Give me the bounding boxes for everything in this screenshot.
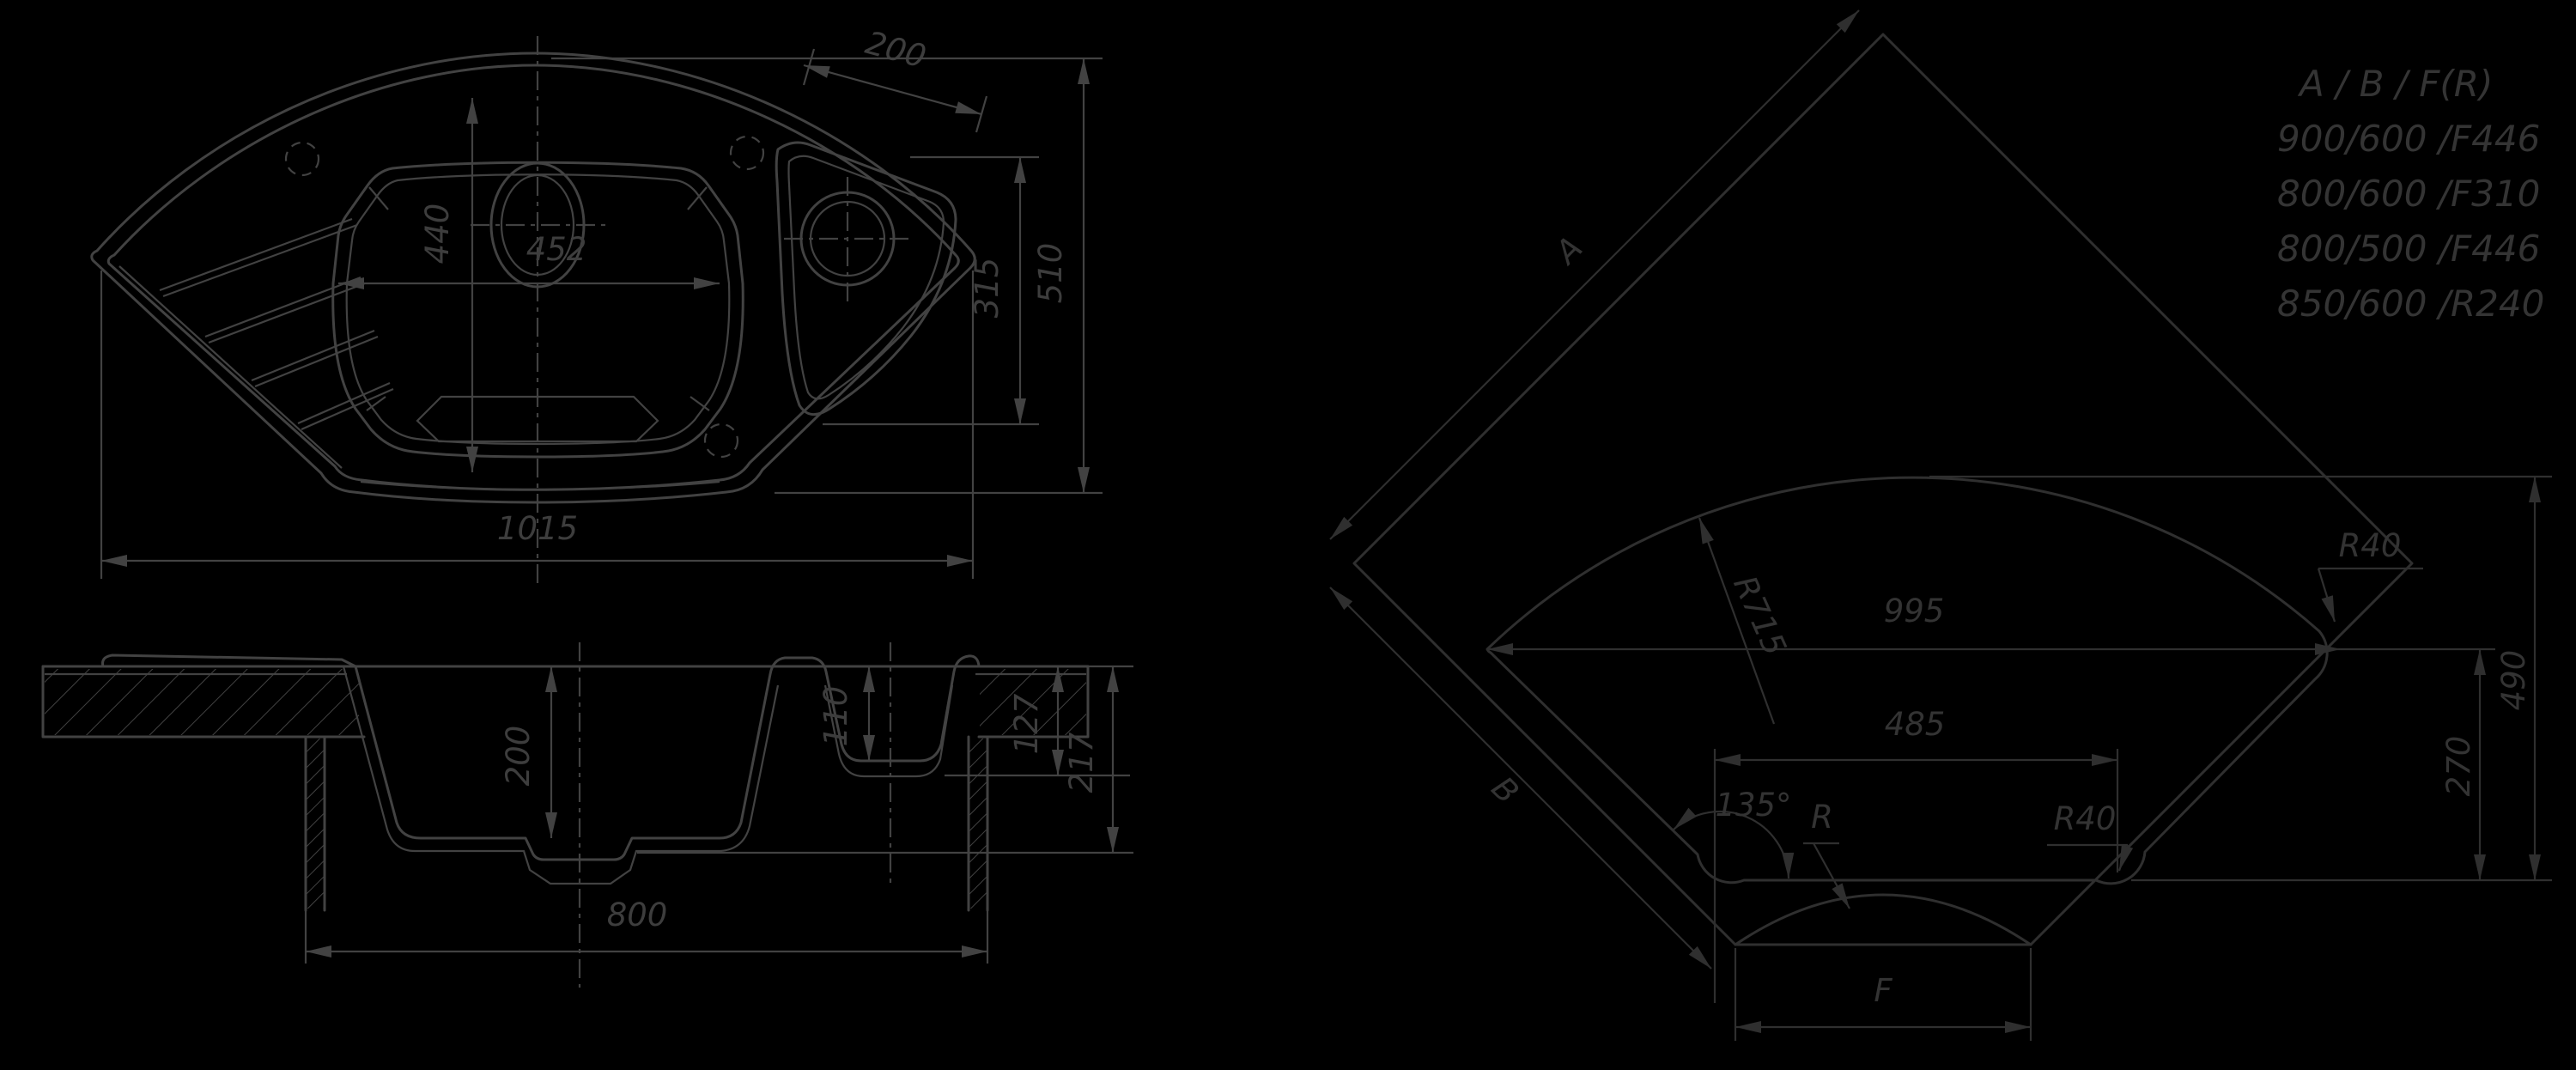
plan-view-dimensions: 440 452 200 315 510 1015 <box>101 24 1103 579</box>
dim-f: F <box>1874 972 1893 1009</box>
section-view-dimensions: 200 110 127 217 800 <box>306 666 1133 964</box>
dim-200-section: 200 <box>500 726 537 787</box>
tap-hole-right <box>731 137 763 169</box>
legend-row: 850/600 /R240 <box>2277 283 2544 325</box>
dim-452: 452 <box>526 231 587 268</box>
dim-r-label: R <box>1811 799 1833 836</box>
dim-510: 510 <box>1032 243 1069 304</box>
dim-135deg: 135° <box>1715 787 1791 824</box>
legend-row: 900/600 /F446 <box>2277 118 2540 160</box>
dim-110: 110 <box>817 686 854 747</box>
tap-hole-bottom <box>705 424 738 457</box>
legend-header: A / B / F(R) <box>2297 63 2493 105</box>
dim-490: 490 <box>2495 650 2532 711</box>
size-legend: A / B / F(R) 900/600 /F446 800/600 /F310… <box>2277 63 2544 325</box>
technical-drawing-canvas: 440 452 200 315 510 1015 <box>0 0 2576 1070</box>
tap-hole-left <box>286 143 319 175</box>
dim-r715: R715 <box>1726 570 1793 661</box>
dim-127: 127 <box>1008 693 1045 754</box>
plan-view-linework <box>92 36 975 584</box>
dim-270: 270 <box>2440 736 2477 797</box>
dim-315: 315 <box>969 258 1005 319</box>
section-view-linework <box>43 642 1088 988</box>
dim-440: 440 <box>419 204 456 264</box>
dim-r40-front: R40 <box>2054 800 2117 837</box>
corner-view-linework <box>1354 34 2412 945</box>
sink-technical-drawing: 440 452 200 315 510 1015 <box>0 0 2576 1070</box>
legend-row: 800/500 /F446 <box>2277 228 2540 270</box>
dim-217: 217 <box>1063 732 1100 793</box>
dim-1015: 1015 <box>497 510 578 547</box>
corner-view-dimensions: A B 995 485 270 490 R715 R40 135° R R40 <box>1330 10 2552 1041</box>
dim-r40-top: R40 <box>2339 527 2402 564</box>
dim-485: 485 <box>1885 706 1946 743</box>
dim-995: 995 <box>1884 593 1945 629</box>
edge-label-a: A <box>1547 229 1590 272</box>
dim-200-plan: 200 <box>862 24 930 76</box>
dim-800: 800 <box>607 897 668 933</box>
legend-row: 800/600 /F310 <box>2277 173 2540 215</box>
